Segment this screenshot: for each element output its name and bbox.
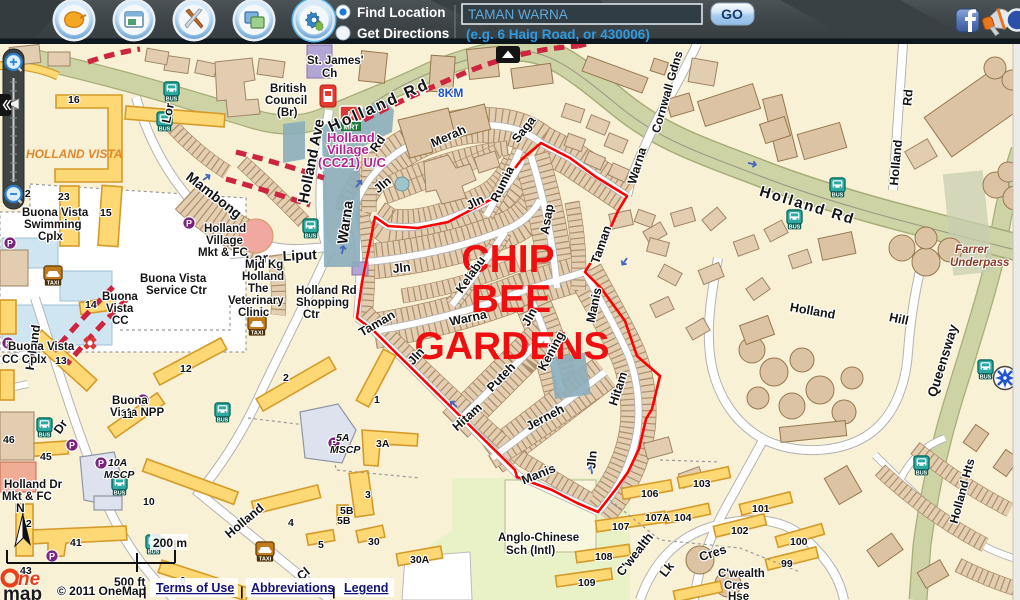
svg-text:10: 10	[143, 496, 155, 508]
svg-text:13: 13	[55, 355, 67, 367]
svg-text:11: 11	[122, 409, 133, 421]
svg-text:Jln: Jln	[584, 450, 600, 469]
svg-text:103: 103	[693, 478, 711, 490]
svg-text:Hse: Hse	[728, 591, 749, 600]
svg-text:Jln: Jln	[392, 260, 411, 276]
svg-text:10A: 10A	[108, 457, 127, 469]
svg-text:Vista NPP: Vista NPP	[110, 407, 164, 419]
svg-text:16: 16	[68, 94, 80, 106]
svg-text:Buona Vista: Buona Vista	[22, 207, 89, 219]
svg-text:Farrer: Farrer	[955, 244, 989, 256]
svg-text:4: 4	[288, 517, 294, 529]
svg-text:Get Directions: Get Directions	[357, 26, 449, 41]
svg-text:GO: GO	[721, 6, 743, 22]
svg-text:Clinic: Clinic	[238, 307, 270, 319]
svg-text:Underpass: Underpass	[950, 257, 1009, 269]
svg-text:Ctr: Ctr	[303, 309, 320, 321]
svg-text:5B: 5B	[337, 515, 351, 527]
svg-text:2: 2	[283, 372, 289, 384]
svg-text:Mkt & FC: Mkt & FC	[198, 247, 248, 259]
svg-text:Ch: Ch	[322, 68, 337, 80]
svg-text:Buona Vista: Buona Vista	[140, 273, 207, 285]
svg-text:5: 5	[318, 539, 324, 551]
svg-text:Village: Village	[206, 235, 243, 247]
svg-text:British: British	[270, 83, 306, 95]
svg-text:The: The	[248, 283, 268, 295]
svg-text:Shopping: Shopping	[296, 297, 349, 309]
svg-text:Buona: Buona	[112, 395, 148, 407]
svg-text:GARDENS: GARDENS	[414, 325, 609, 368]
svg-text:104: 104	[674, 512, 692, 524]
svg-text:107A: 107A	[645, 512, 671, 524]
svg-text:N: N	[16, 501, 25, 515]
svg-text:map: map	[3, 584, 42, 600]
svg-text:3A: 3A	[376, 438, 390, 450]
svg-text:200 m: 200 m	[153, 536, 187, 550]
svg-text:1: 1	[374, 394, 380, 406]
svg-text:41: 41	[70, 537, 82, 549]
svg-text:107: 107	[612, 521, 630, 533]
svg-text:|: |	[240, 584, 244, 599]
svg-text:C'wealth: C'wealth	[718, 568, 765, 580]
svg-text:Liput: Liput	[282, 246, 317, 264]
svg-text:45: 45	[40, 451, 52, 463]
svg-text:8KM: 8KM	[438, 86, 463, 100]
svg-text:Mjd Kg: Mjd Kg	[245, 259, 283, 271]
svg-text:108: 108	[595, 551, 613, 563]
svg-text:Terms of Use: Terms of Use	[156, 581, 234, 595]
svg-text:Buona Vista: Buona Vista	[8, 341, 75, 353]
svg-text:30A: 30A	[410, 554, 430, 566]
svg-text:Rd: Rd	[900, 89, 915, 107]
svg-text:Holland Rd: Holland Rd	[296, 285, 357, 297]
svg-text:|: |	[332, 584, 336, 599]
svg-text:14: 14	[85, 299, 97, 311]
svg-text:Abbreviations: Abbreviations	[251, 581, 334, 595]
svg-text:|: |	[143, 584, 147, 599]
svg-text:Swimming: Swimming	[24, 219, 82, 231]
svg-text:Service Ctr: Service Ctr	[146, 285, 207, 297]
svg-text:St. James': St. James'	[307, 55, 364, 67]
svg-text:101: 101	[752, 503, 770, 515]
svg-text:106: 106	[641, 488, 659, 500]
svg-text:CC: CC	[112, 315, 129, 327]
svg-text:99: 99	[781, 558, 793, 570]
svg-text:23: 23	[58, 191, 70, 203]
svg-text:Veterinary: Veterinary	[228, 295, 284, 307]
svg-text:Buona: Buona	[102, 291, 138, 303]
svg-text:102: 102	[731, 525, 749, 537]
svg-text:Mkt & FC: Mkt & FC	[2, 491, 52, 503]
svg-text:(Br): (Br)	[277, 107, 298, 119]
svg-text:100: 100	[790, 536, 808, 548]
svg-text:Anglo-Chinese: Anglo-Chinese	[498, 532, 579, 544]
svg-text:(CC21) U/C: (CC21) U/C	[318, 155, 387, 170]
svg-text:© 2011 OneMap: © 2011 OneMap	[57, 584, 146, 598]
svg-text:30: 30	[368, 536, 380, 548]
svg-text:109: 109	[578, 577, 596, 589]
svg-text:5A: 5A	[336, 432, 349, 444]
svg-text:46: 46	[3, 434, 15, 446]
svg-text:Holland: Holland	[204, 223, 246, 235]
svg-text:Sch (Intl): Sch (Intl)	[506, 545, 555, 557]
svg-text:HOLLAND VISTA: HOLLAND VISTA	[26, 147, 122, 161]
svg-text:15: 15	[100, 207, 112, 219]
svg-text:TAMAN WARNA: TAMAN WARNA	[468, 7, 568, 22]
svg-text:Holland Dr: Holland Dr	[4, 479, 63, 491]
svg-text:Holland: Holland	[242, 271, 284, 283]
svg-text:MSCP: MSCP	[330, 444, 361, 456]
svg-text:Council: Council	[265, 95, 307, 107]
svg-text:CC Cplx: CC Cplx	[2, 354, 47, 366]
svg-text:MSCP: MSCP	[104, 469, 135, 481]
svg-text:12: 12	[180, 363, 192, 375]
svg-text:Find Location: Find Location	[357, 5, 446, 20]
svg-text:Cplx: Cplx	[38, 231, 64, 243]
svg-text:3: 3	[365, 489, 371, 501]
svg-text:(e.g. 6 Haig Road, or 430006): (e.g. 6 Haig Road, or 430006)	[466, 27, 650, 42]
svg-text:Legend: Legend	[344, 581, 388, 595]
svg-text:Vista: Vista	[106, 303, 134, 315]
